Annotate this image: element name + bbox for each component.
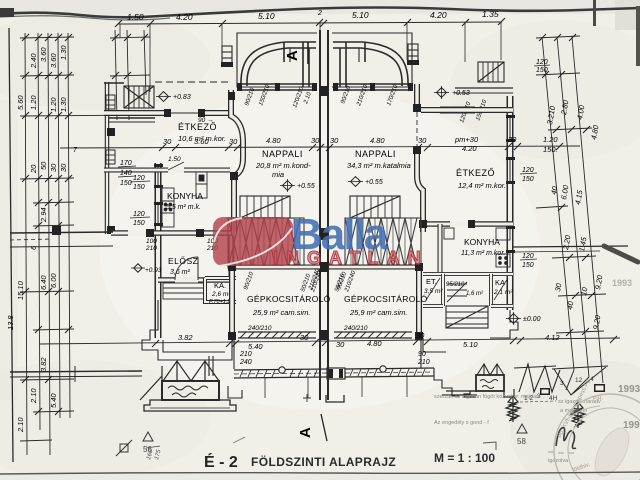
svg-text:210: 210 xyxy=(145,245,157,252)
svg-text:3.60: 3.60 xyxy=(194,137,209,146)
svg-text:KA.: KA. xyxy=(214,281,226,290)
svg-text:30: 30 xyxy=(59,163,68,172)
svg-text:2,6 m²: 2,6 m² xyxy=(211,291,231,298)
svg-text:20,8 m² m.kond-: 20,8 m² m.kond- xyxy=(255,161,311,170)
svg-text:58: 58 xyxy=(517,437,526,446)
svg-text:Az engedély s gond - f: Az engedély s gond - f xyxy=(434,420,489,426)
svg-text:mia: mia xyxy=(272,170,284,179)
svg-text:+0.55: +0.55 xyxy=(365,179,383,186)
svg-text:30: 30 xyxy=(508,135,517,144)
svg-text:2,1 m²: 2,1 m² xyxy=(493,289,513,296)
svg-text:FÖLDSZINTI ALAPRAJZ: FÖLDSZINTI ALAPRAJZ xyxy=(251,454,396,469)
svg-text:INGATLAN: INGATLAN xyxy=(273,248,429,268)
svg-text:GÉPKOCSITÁROLÓ: GÉPKOCSITÁROLÓ xyxy=(344,294,428,304)
svg-text:4.80: 4.80 xyxy=(266,136,281,145)
svg-text:30: 30 xyxy=(416,331,425,340)
svg-text:ET.: ET. xyxy=(426,277,437,286)
svg-text:30: 30 xyxy=(336,340,345,349)
svg-text:NAPPALI: NAPPALI xyxy=(355,149,396,159)
svg-text:A: A xyxy=(297,427,314,438)
svg-text:2.10: 2.10 xyxy=(29,388,38,404)
svg-text:+0.83: +0.83 xyxy=(173,94,191,101)
svg-text:+0.55: +0.55 xyxy=(297,183,315,190)
svg-text:4.20: 4.20 xyxy=(176,12,193,22)
svg-text:4.12: 4.12 xyxy=(545,333,560,342)
svg-text:NAPPALI: NAPPALI xyxy=(262,149,303,159)
svg-text:±0.00: ±0.00 xyxy=(523,316,541,323)
svg-text:240/210: 240/210 xyxy=(247,325,272,332)
svg-text:240/210: 240/210 xyxy=(343,325,368,332)
svg-text:5.10: 5.10 xyxy=(352,10,369,20)
svg-text:szerzal, az ingatlan fögöt köz: szerzal, az ingatlan fögöt közvetve: maj… xyxy=(434,394,539,400)
svg-text:30: 30 xyxy=(163,137,172,146)
svg-text:KONYHA: KONYHA xyxy=(464,237,500,247)
svg-text:1.20: 1.20 xyxy=(543,135,558,144)
svg-text:56: 56 xyxy=(143,445,152,454)
svg-text:5,5 m² m.k.: 5,5 m² m.k. xyxy=(166,204,201,211)
svg-text:150: 150 xyxy=(522,176,534,183)
svg-text:3: 3 xyxy=(560,380,564,387)
svg-text:30: 30 xyxy=(311,136,320,145)
svg-text:20: 20 xyxy=(29,164,38,174)
svg-text:+0.93: +0.93 xyxy=(145,267,162,274)
svg-text:13.8: 13.8 xyxy=(6,315,15,330)
svg-text:2.40: 2.40 xyxy=(29,53,38,69)
svg-text:1,6 m²: 1,6 m² xyxy=(466,291,484,297)
svg-text:210: 210 xyxy=(417,359,430,366)
svg-text:4.20: 4.20 xyxy=(462,144,477,153)
svg-text:4.80: 4.80 xyxy=(370,136,385,145)
svg-text:30: 30 xyxy=(49,163,58,172)
svg-text:25,9 m² cam.sim.: 25,9 m² cam.sim. xyxy=(349,308,408,317)
svg-text:150: 150 xyxy=(522,262,534,269)
svg-text:25,9 m² cam.sim.: 25,9 m² cam.sim. xyxy=(252,308,311,317)
svg-text:3.82: 3.82 xyxy=(39,357,48,372)
svg-text:5.40: 5.40 xyxy=(248,342,263,351)
svg-text:6.40: 6.40 xyxy=(39,275,48,290)
svg-text:2.10: 2.10 xyxy=(16,417,25,433)
svg-text:15.10: 15.10 xyxy=(16,280,25,300)
svg-text:30: 30 xyxy=(300,333,309,342)
svg-text:pm+30: pm+30 xyxy=(454,135,479,144)
svg-text:A: A xyxy=(284,50,301,61)
svg-text:GÉPKOCSITÁROLÓ: GÉPKOCSITÁROLÓ xyxy=(247,294,331,304)
svg-text:30: 30 xyxy=(330,136,339,145)
svg-text:1.30: 1.30 xyxy=(59,97,68,112)
svg-text:KONYHA: KONYHA xyxy=(167,191,203,201)
svg-text:ÉTKEZŐ: ÉTKEZŐ xyxy=(456,168,495,178)
svg-text:100: 100 xyxy=(146,238,157,245)
svg-text:3.60: 3.60 xyxy=(39,47,48,62)
svg-text:4.80: 4.80 xyxy=(367,339,382,348)
svg-text:2: 2 xyxy=(317,10,322,17)
svg-text:1.20: 1.20 xyxy=(29,95,38,110)
svg-text:1.35: 1.35 xyxy=(482,9,499,19)
svg-text:5.40: 5.40 xyxy=(49,393,58,408)
svg-text:1.50: 1.50 xyxy=(127,12,144,22)
svg-text:240: 240 xyxy=(239,359,252,366)
svg-text:12,4 m² m.kor.: 12,4 m² m.kor. xyxy=(458,181,506,190)
svg-text:30: 30 xyxy=(229,137,238,146)
svg-text:90: 90 xyxy=(418,351,426,358)
svg-text:3.82: 3.82 xyxy=(178,333,193,342)
svg-text:1.50: 1.50 xyxy=(168,156,181,163)
svg-text:6.00: 6.00 xyxy=(49,273,58,288)
svg-text:12: 12 xyxy=(575,377,583,384)
svg-text:M = 1 : 100: M = 1 : 100 xyxy=(434,451,495,465)
svg-text:2.94: 2.94 xyxy=(39,207,48,223)
svg-text:igazolva: igazolva xyxy=(548,458,569,464)
svg-text:30: 30 xyxy=(418,136,427,145)
svg-text:1.20: 1.20 xyxy=(49,97,58,112)
svg-text:3,6 m²: 3,6 m² xyxy=(170,269,191,276)
svg-text:1993: 1993 xyxy=(612,278,632,288)
svg-text:5.10: 5.10 xyxy=(463,340,478,349)
svg-text:É - 2: É - 2 xyxy=(204,452,238,471)
svg-text:3.60: 3.60 xyxy=(49,53,58,68)
svg-text:1.30: 1.30 xyxy=(59,45,68,60)
svg-text:150.: 150. xyxy=(543,145,558,154)
svg-text:5.60: 5.60 xyxy=(16,95,25,110)
svg-text:150: 150 xyxy=(133,220,145,227)
svg-text:150: 150 xyxy=(536,67,548,74)
svg-text:P.H.: P.H. xyxy=(593,396,603,402)
svg-text:11,3 m² m.kor.: 11,3 m² m.kor. xyxy=(461,250,505,257)
svg-text:34,3 m² m.katalmia: 34,3 m² m.katalmia xyxy=(347,161,411,170)
svg-text:5.10: 5.10 xyxy=(258,11,275,21)
svg-text:50: 50 xyxy=(39,161,48,170)
svg-text:150: 150 xyxy=(120,180,132,187)
svg-text:150: 150 xyxy=(133,184,145,191)
svg-text:+0.53: +0.53 xyxy=(452,90,470,97)
svg-text:1993: 1993 xyxy=(618,384,640,395)
svg-text:210: 210 xyxy=(239,351,252,358)
svg-text:90 →: 90 → xyxy=(198,117,214,124)
svg-text:4.20: 4.20 xyxy=(430,10,447,20)
